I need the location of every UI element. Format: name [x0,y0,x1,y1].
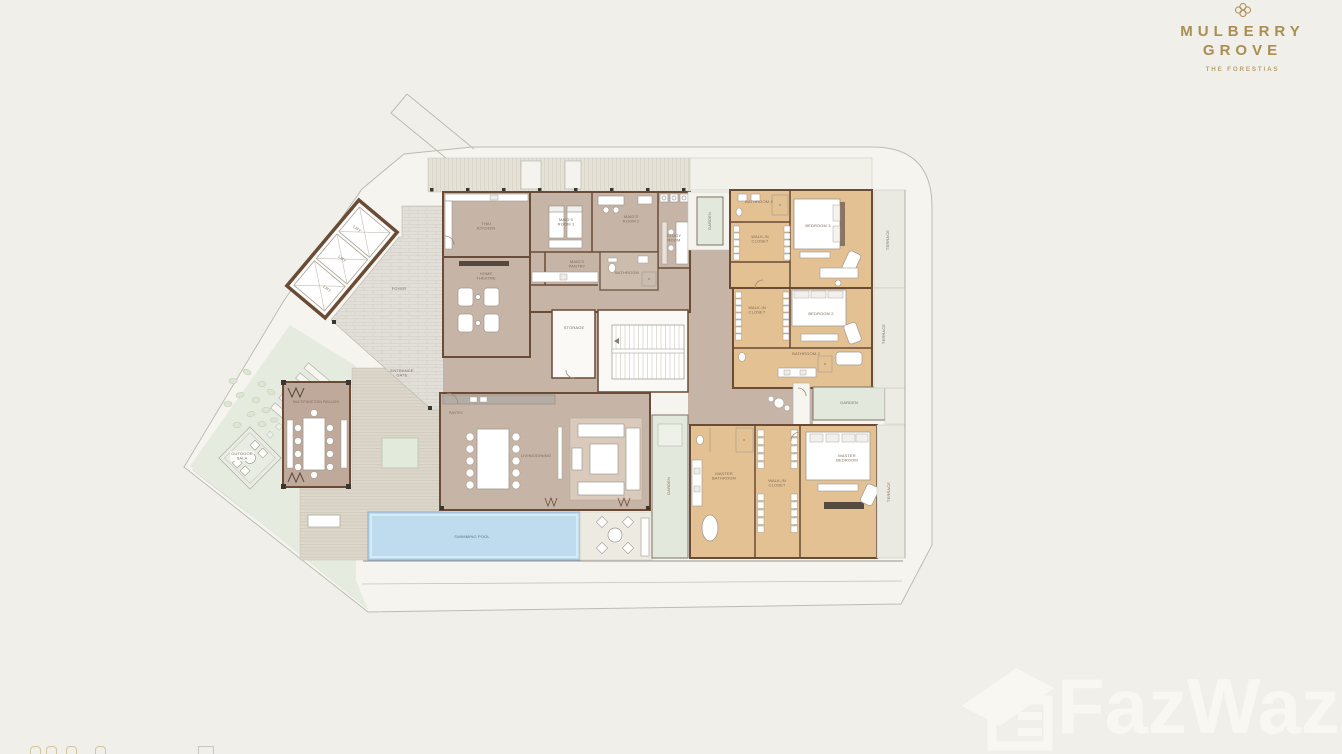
to ilet [739,353,746,362]
bedroom2-suite [733,288,872,388]
brand-name-line1: MULBERRY [1160,23,1325,42]
theatre-screen [459,261,509,266]
swimming-pool [368,512,580,560]
toilet [609,264,616,273]
vanity [778,368,816,377]
desk [598,196,624,205]
brand-tagline: THE FORESTIAS [1206,66,1280,73]
bathtub [836,352,862,365]
toilet [697,436,704,445]
bench [308,515,340,527]
pavilion-table [303,418,325,470]
tv-console [824,502,864,509]
watermark: FazWaz [962,660,1340,752]
staircase [612,325,684,379]
study-desk [676,222,688,264]
freestanding-tub [702,515,718,541]
kitchen-counter [445,194,528,201]
vanity [692,460,702,506]
cropped-glyph [30,746,41,754]
floorplan-image: LIFTLIFTLIFTFOYERENTRANCE GATETHAI KITCH… [0,0,1342,754]
deck-planter [382,438,418,468]
planter [641,518,649,556]
tv [558,427,562,479]
pavilion [281,380,351,489]
brand-logo: MULBERRY GROVE THE FORESTIAS [1160,2,1325,79]
terraces-east [874,190,905,558]
garden-strip-mid [813,387,885,420]
watermark-text: FazWaz [1057,667,1340,745]
outdoor-table [608,528,622,542]
laundry-machines [660,194,688,202]
cropped-glyph [66,746,77,754]
basin [638,256,648,263]
living-dining [440,393,650,510]
hall-table [774,398,784,408]
floor-plan-drawing [0,0,1342,754]
master-suite [690,425,880,558]
desk [820,268,858,278]
dining-table [477,429,509,489]
storage-room [552,310,595,378]
brand-name-line2: GROVE [1160,42,1325,61]
brand-ornament-icon [1234,2,1252,18]
cropped-glyph [95,746,106,754]
watermark-house-icon [962,660,1057,752]
sofa-set [572,424,640,495]
cropped-glyph [46,746,57,754]
cropped-glyph [198,746,214,754]
pantry-counter [443,395,555,404]
stove [490,195,498,200]
garden-strip-top [697,197,723,245]
